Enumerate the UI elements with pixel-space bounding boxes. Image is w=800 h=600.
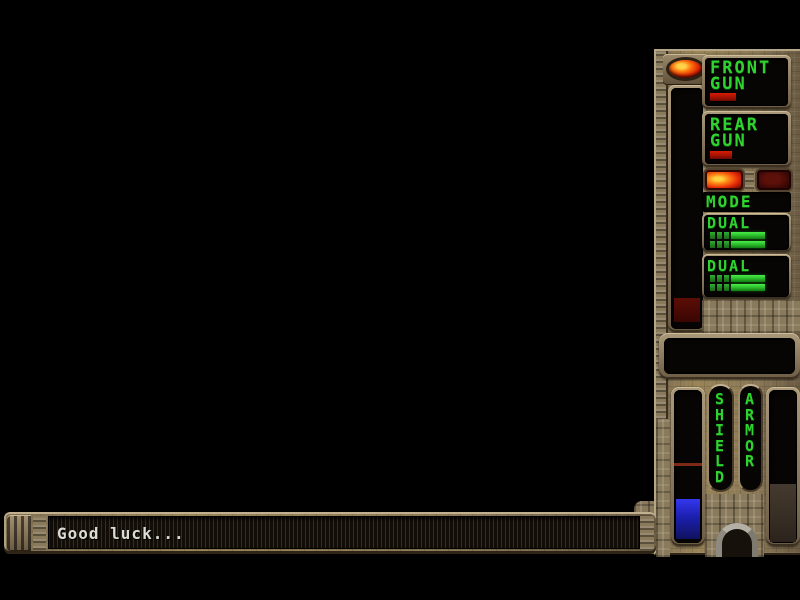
shield-energy-fill	[676, 499, 700, 539]
mode-label: MODE	[702, 192, 791, 210]
dual-bottom-bar-row2	[710, 284, 789, 291]
game-screen: FRONT GUN REAR GUN MODE DUAL	[0, 0, 800, 600]
message-bar-left-ridge	[33, 516, 46, 550]
armor-gauge-lower-plate	[770, 484, 796, 542]
shield-energy-threshold-line	[674, 463, 702, 466]
shield-label: SHIELD	[715, 392, 726, 485]
armor-label: ARMOR	[745, 392, 756, 470]
front-gun-label-line2: GUN	[710, 76, 788, 92]
message-bar-left-cap	[7, 515, 31, 551]
rear-gun-panel: REAR GUN	[702, 111, 791, 167]
missile-energy-bar	[668, 85, 706, 332]
sidebar-bottom-rail-greebles	[656, 419, 670, 557]
dual-top-label: DUAL	[707, 216, 789, 230]
front-gun-ammo-bar	[710, 93, 736, 101]
dual-bottom-bar-row1	[710, 275, 789, 282]
mode-button-left-lit-icon	[705, 170, 743, 190]
mode-hinge	[745, 171, 754, 189]
dual-top-bar-row1	[710, 232, 789, 239]
armor-capsule: ARMOR	[738, 384, 763, 492]
mode-strip: MODE	[702, 192, 791, 212]
wheel-arch-greeble	[716, 523, 758, 557]
dual-bottom-label: DUAL	[707, 259, 789, 273]
status-display	[659, 333, 800, 379]
shield-energy-gauge	[671, 387, 705, 546]
hud-sidebar: FRONT GUN REAR GUN MODE DUAL	[654, 49, 800, 555]
shield-capsule: SHIELD	[707, 384, 734, 492]
rear-gun-ammo-bar	[710, 151, 732, 159]
dual-top-bar-row2	[710, 241, 789, 248]
missile-energy-fill	[674, 298, 700, 322]
front-gun-panel: FRONT GUN	[702, 55, 791, 109]
rear-gun-label-line2: GUN	[710, 133, 788, 149]
mode-button-row	[702, 169, 792, 191]
power-led-icon	[669, 60, 702, 78]
message-bar: Good luck...	[4, 512, 656, 554]
message-text: Good luck...	[57, 524, 185, 543]
dual-panel-top: DUAL	[702, 213, 791, 252]
mode-button-right-unlit-icon	[757, 170, 791, 190]
message-display: Good luck...	[48, 516, 640, 549]
dual-panel-bottom: DUAL	[702, 254, 791, 299]
message-bar-right-cap	[640, 515, 654, 551]
armor-gauge	[766, 387, 800, 546]
circuit-greebles-top	[702, 300, 800, 333]
